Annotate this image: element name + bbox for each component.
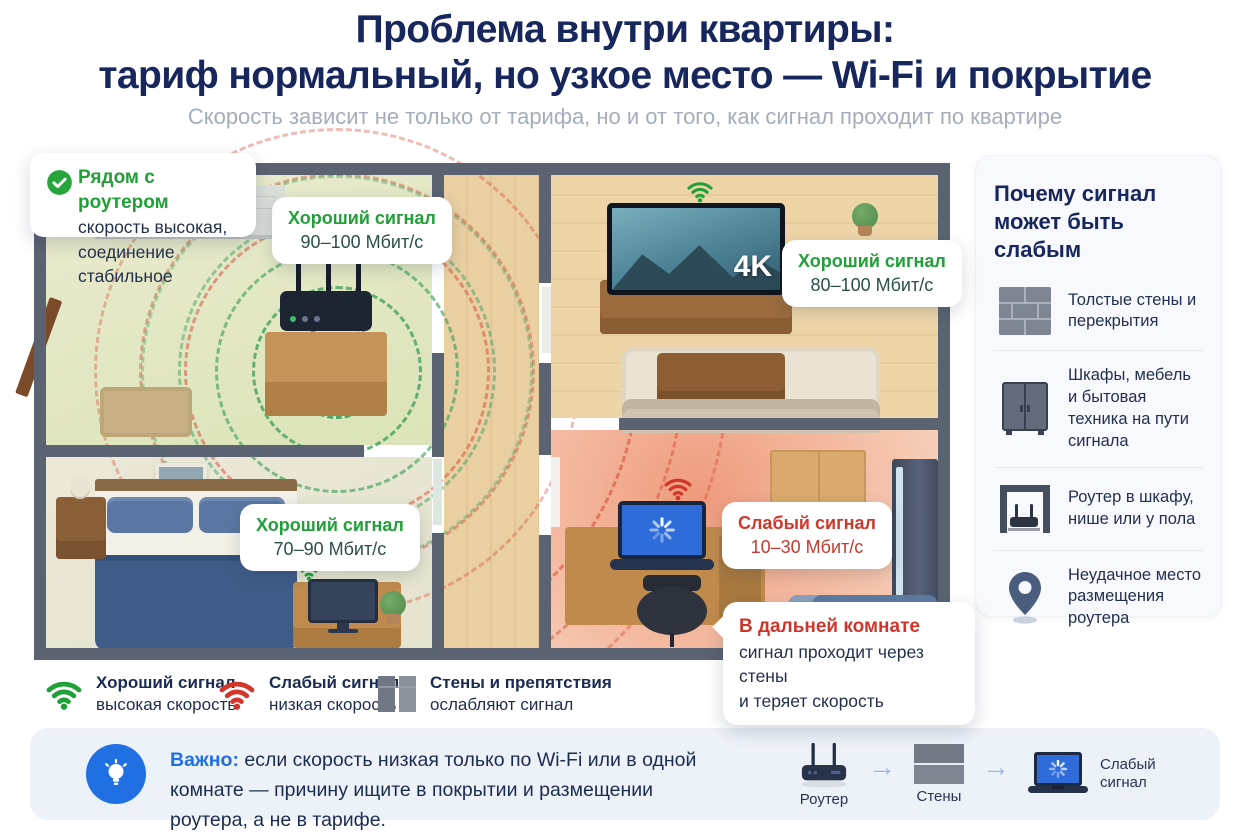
sidebar-item-bad-location: Неудачное место размещения роутера: [994, 551, 1203, 644]
legend-walls: Стены и препятствия ослабляют сигнал: [377, 672, 612, 716]
wifi-weak-icon: [218, 678, 256, 710]
loading-spinner-icon: [647, 515, 677, 545]
wall-segment: [34, 163, 46, 660]
label-hall-signal: Хороший сигнал 90–100 Мбит/с: [272, 197, 452, 264]
door-bedroom: [433, 459, 442, 525]
plant: [378, 591, 408, 624]
wall-segment: [539, 175, 551, 283]
legend-good-signal: Хороший сигнал высокая скорость: [45, 672, 236, 716]
sidebar-item-furniture: Шкафы, мебель и бытовая техника на пути …: [994, 351, 1203, 467]
page-subtitle: Скорость зависит не только от тарифа, но…: [0, 104, 1250, 130]
flow-weak-label: Слабый сигнал: [1100, 756, 1162, 792]
office-laptop: [618, 501, 706, 559]
wifi-weak-icon: [663, 475, 693, 501]
note-label: Важно:: [170, 749, 239, 771]
label-bedroom-signal: Хороший сигнал 70–90 Мбит/с: [240, 504, 420, 571]
laptop-base: [610, 559, 714, 570]
doormat: [100, 387, 192, 437]
door-living: [542, 287, 551, 353]
arrow-right-icon: →: [868, 751, 896, 783]
sidebar-title-line2: может быть слабым: [994, 209, 1124, 262]
router: [280, 291, 372, 331]
router-in-niche-icon: [996, 482, 1054, 536]
map-pin-icon: [996, 570, 1054, 624]
note-text: Важно: если скорость низкая только по Wi…: [170, 745, 735, 836]
label-hall-title: Хороший сигнал: [288, 206, 436, 231]
wall-segment: [432, 533, 444, 648]
legend-subtitle: ослабляют сигнал: [430, 694, 612, 716]
flow-router: Роутер: [796, 739, 852, 809]
window-curtain: [892, 459, 938, 611]
arrow-right-icon: →: [982, 751, 1010, 783]
sidebar-title: Почему сигнал может быть слабым: [994, 180, 1203, 264]
tv: 4K: [607, 203, 785, 295]
label-office-title: Слабый сигнал: [738, 511, 876, 536]
wall-segment: [938, 163, 950, 660]
office-chair: [635, 575, 709, 655]
sidebar-item-text: Толстые стены и перекрытия: [1068, 290, 1201, 334]
wifi-good-icon: [45, 678, 83, 710]
important-note: Важно: если скорость низкая только по Wi…: [30, 728, 1220, 820]
wall-segment: [539, 535, 551, 648]
bed-pillow: [107, 497, 193, 533]
cabinet-icon: [996, 381, 1054, 437]
infographic-canvas: Проблема внутри квартиры: тариф нормальн…: [0, 0, 1250, 833]
page-title-line2: тариф нормальный, но узкое место — Wi-Fi…: [0, 54, 1250, 98]
lamp: [70, 477, 90, 497]
label-living-value: 80–100 Мбит/с: [798, 274, 946, 297]
note-body: если скорость низкая только по Wi-Fi или…: [170, 749, 696, 831]
wall-icon: [377, 675, 417, 713]
check-circle-icon: [46, 169, 73, 196]
sidebar-item-text: Роутер в шкафу, нише или у пола: [1068, 487, 1201, 531]
legend-title: Хороший сигнал: [96, 672, 236, 694]
label-bedroom-value: 70–90 Мбит/с: [256, 538, 404, 561]
callout-far-title: В дальней комнате: [739, 614, 959, 640]
coffee-table: [657, 353, 785, 403]
callout-far-line1: сигнал проходит через стены: [739, 640, 959, 689]
wall-segment: [432, 353, 444, 457]
router-icon: [796, 739, 852, 789]
door-office: [551, 457, 560, 527]
legend-subtitle: высокая скорость: [96, 694, 236, 716]
tv-4k-badge: 4K: [734, 250, 772, 284]
label-hall-value: 90–100 Мбит/с: [288, 231, 436, 254]
legend-weak-signal: Слабый сигнал низкая скорость: [218, 672, 399, 716]
callout-near-router: Рядом с роутером скорость высокая, соеди…: [30, 153, 256, 237]
flow-walls-label: Стены: [917, 788, 962, 806]
sidebar-item-router-placement: Роутер в шкафу, нише или у пола: [994, 468, 1203, 551]
callout-far-line2: и теряет скорость: [739, 689, 959, 714]
laptop-screen: [622, 505, 702, 555]
wall-segment: [619, 418, 938, 430]
label-living-signal: Хороший сигнал 80–100 Мбит/с: [782, 240, 962, 307]
sidebar-item-walls: Толстые стены и перекрытия: [994, 272, 1203, 351]
nightstand: [56, 497, 106, 559]
sidebar-title-line1: Почему сигнал: [994, 181, 1156, 206]
sidebar-item-text: Неудачное место размещения роутера: [1068, 565, 1201, 630]
brick-wall-icon: [996, 286, 1054, 336]
bedroom-monitor: [308, 579, 378, 635]
wall-segment: [539, 363, 551, 455]
tv-screen: 4K: [612, 208, 780, 290]
callout-router-line2: соединение стабильное: [78, 240, 246, 288]
label-office-signal: Слабый сигнал 10–30 Мбит/с: [722, 502, 892, 569]
wall-icon: [912, 742, 966, 786]
sidebar-item-text: Шкафы, мебель и бытовая техника на пути …: [1068, 365, 1201, 452]
callout-far-room: В дальней комнате сигнал проходит через …: [723, 602, 975, 725]
lightbulb-icon: [86, 744, 146, 804]
laptop-loading-icon: [1026, 750, 1090, 798]
plant: [850, 203, 880, 236]
wall-segment: [46, 445, 364, 457]
router-table: [265, 332, 387, 416]
sidebar-why-weak: Почему сигнал может быть слабым Толстые …: [975, 155, 1222, 617]
flow-router-label: Роутер: [800, 791, 848, 809]
page-title-line1: Проблема внутри квартиры:: [0, 8, 1250, 52]
flow-weak-signal: Слабый сигнал: [1026, 750, 1162, 798]
wifi-good-icon: [686, 179, 714, 203]
label-bedroom-title: Хороший сигнал: [256, 513, 404, 538]
flow-walls: Стены: [912, 742, 966, 806]
label-office-value: 10–30 Мбит/с: [738, 536, 876, 559]
label-living-title: Хороший сигнал: [798, 249, 946, 274]
cause-flow: Роутер → Стены → Слабый сигнал: [796, 736, 1162, 812]
legend-title: Стены и препятствия: [430, 672, 612, 694]
callout-router-line1: скорость высокая,: [78, 215, 246, 239]
callout-router-title: Рядом с роутером: [78, 166, 246, 215]
